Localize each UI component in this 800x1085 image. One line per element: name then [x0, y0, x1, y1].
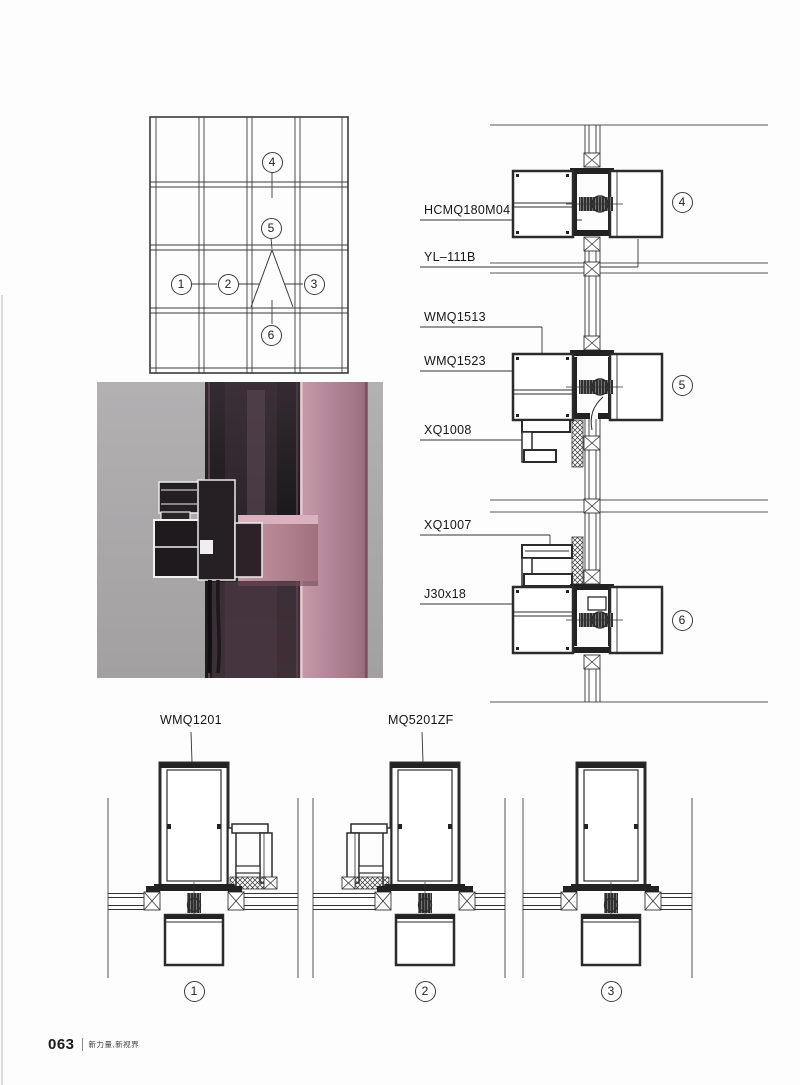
page-number: 063 — [48, 1036, 75, 1053]
label-yl111b: YL–111B — [424, 250, 476, 265]
label-xq1008: XQ1008 — [424, 423, 472, 438]
footer-tagline: 新力量,新视界 — [89, 1039, 140, 1050]
detail-2-drawing — [342, 763, 473, 965]
section-callout-6: 6 — [672, 610, 693, 631]
label-wmq1201: WMQ1201 — [160, 713, 222, 728]
label-wmq1523: WMQ1523 — [424, 354, 486, 369]
label-mq5201zf: MQ5201ZF — [388, 713, 454, 728]
elevation-callout-1: 1 — [171, 274, 192, 295]
elevation-callout-6: 6 — [261, 325, 282, 346]
section-callout-2: 2 — [415, 981, 436, 1002]
elevation-callout-4: 4 — [262, 152, 283, 173]
catalog-page: 1 2 3 4 5 6 — [0, 0, 800, 1085]
page-spine-shadow — [1, 295, 3, 1085]
detail-4-drawing — [513, 168, 662, 237]
page-footer: 063 新力量,新视界 — [48, 1036, 139, 1053]
section-callout-4: 4 — [672, 192, 693, 213]
label-hcmq180m04: HCMQ180M04 — [424, 203, 510, 218]
elevation-callout-3: 3 — [304, 274, 325, 295]
label-wmq1513: WMQ1513 — [424, 310, 486, 325]
detail-3-drawing — [563, 763, 659, 965]
section-callout-1: 1 — [184, 981, 205, 1002]
detail-6-drawing — [513, 545, 662, 653]
label-xq1007: XQ1007 — [424, 518, 472, 533]
vertical-section-details — [415, 105, 785, 715]
elevation-callout-5: 5 — [261, 218, 282, 239]
product-photo-render — [97, 382, 383, 678]
section-callout-3: 3 — [601, 981, 622, 1002]
horizontal-section-details — [90, 700, 710, 990]
elevation-callout-2: 2 — [218, 274, 239, 295]
product-photo — [97, 382, 383, 678]
detail-1-drawing — [146, 763, 277, 965]
label-j30x18: J30x18 — [424, 587, 466, 602]
elevation-diagram — [145, 110, 355, 380]
section-callout-5: 5 — [672, 375, 693, 396]
footer-divider — [82, 1038, 83, 1051]
